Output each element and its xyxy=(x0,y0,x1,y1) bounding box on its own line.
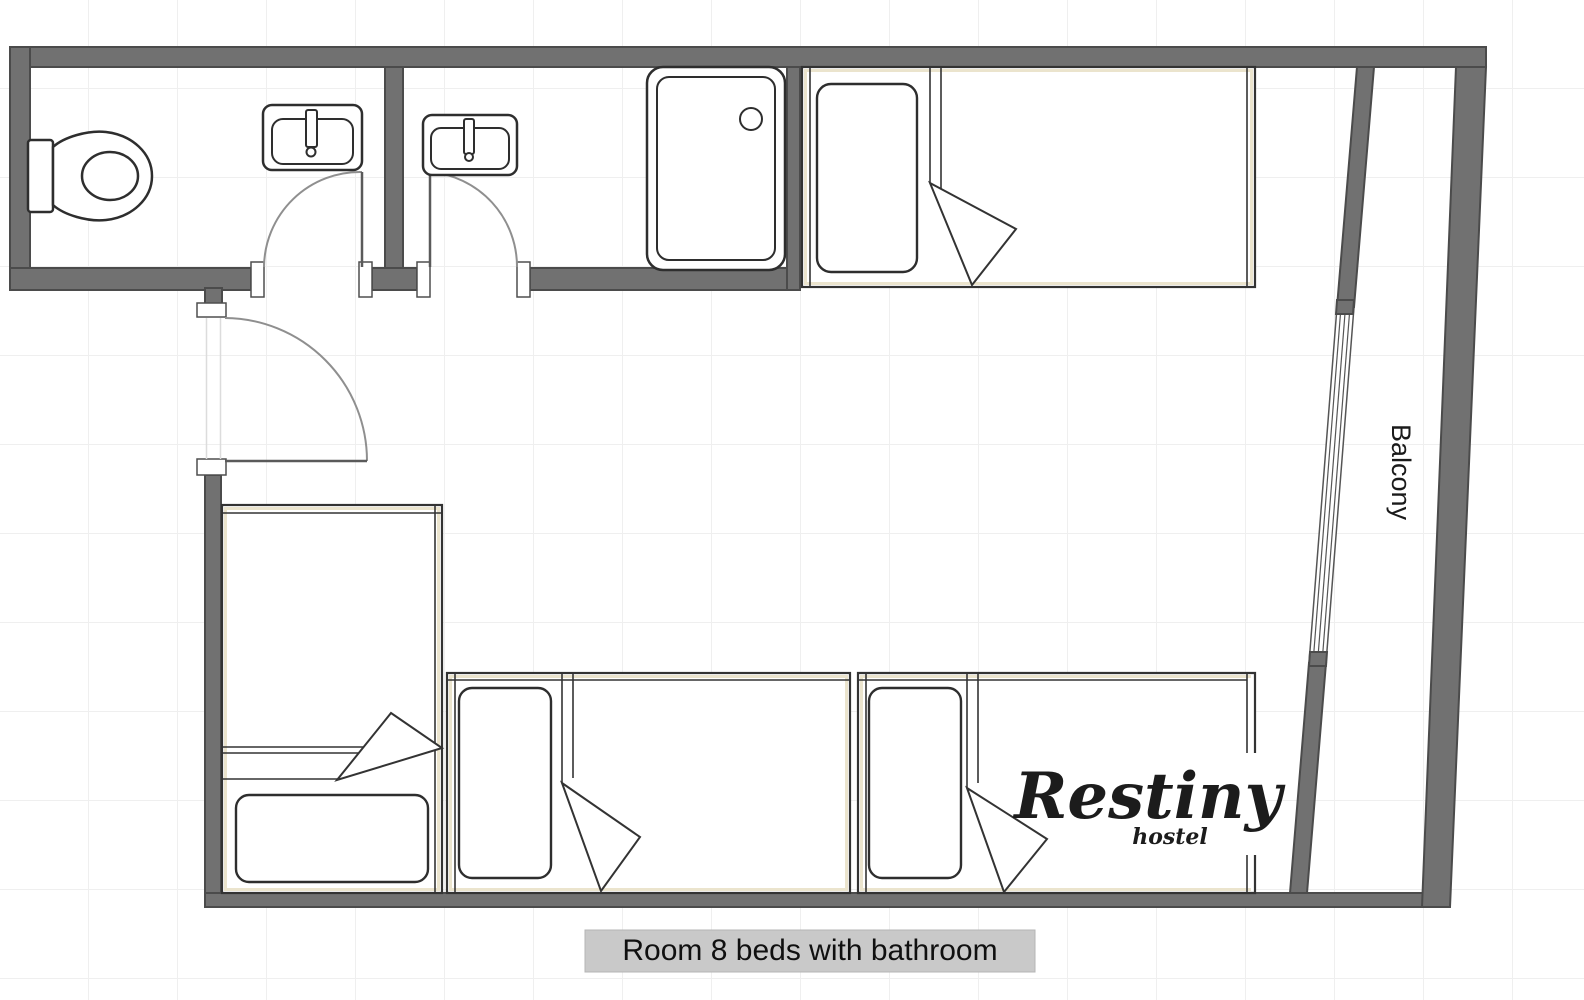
bed-bottom-middle-icon xyxy=(447,673,850,893)
jamb-bath-right-b xyxy=(517,262,530,297)
bed-left-pillow xyxy=(236,795,428,882)
toilet-icon xyxy=(28,132,152,221)
jamb-entrance-top xyxy=(197,303,226,317)
wall-bathroom-bottom-2 xyxy=(372,268,417,290)
shower-tray-inner xyxy=(657,77,775,260)
bed-mid-pillow xyxy=(459,688,551,878)
sink-right-icon xyxy=(423,115,517,175)
sink-right-faucet xyxy=(464,119,474,154)
wall-left-lower xyxy=(205,475,221,893)
toilet-tank xyxy=(28,140,53,212)
toilet-bowl-inner xyxy=(82,152,138,200)
sink-left-faucet xyxy=(306,110,317,147)
shower-drain xyxy=(740,108,762,130)
logo-hostel: hostel xyxy=(1132,824,1208,850)
sink-left-drain xyxy=(307,148,316,157)
bed-right-pillow xyxy=(869,688,961,878)
window-cap-top xyxy=(1336,300,1354,314)
floor-plan-page: Balcony Restiny hostel Room 8 beds with … xyxy=(0,0,1584,1000)
caption: Room 8 beds with bathroom xyxy=(585,930,1035,972)
wall-bathroom-bottom-3 xyxy=(530,268,800,290)
floorplan-svg: Balcony Restiny hostel Room 8 beds with … xyxy=(0,0,1584,1000)
wall-shower-right xyxy=(787,67,800,290)
wall-top xyxy=(10,47,1486,67)
jamb-bath-left-b xyxy=(359,262,372,297)
jamb-bath-right-a xyxy=(417,262,430,297)
wall-between-bathrooms xyxy=(385,67,403,268)
window-cap-bottom xyxy=(1309,652,1327,666)
jamb-entrance-bottom xyxy=(197,459,226,475)
logo-restiny: Restiny xyxy=(1012,759,1285,834)
caption-label: Room 8 beds with bathroom xyxy=(622,934,997,967)
wall-bathroom-bottom-1 xyxy=(10,268,251,290)
sink-right-drain xyxy=(465,153,473,161)
shower-icon xyxy=(647,67,785,270)
bed-left-icon xyxy=(222,505,443,893)
jamb-bath-left-a xyxy=(251,262,264,297)
sink-left-icon xyxy=(263,105,362,170)
balcony-label: Balcony xyxy=(1386,424,1416,521)
bed-top-icon xyxy=(802,67,1255,287)
bed-top-pillow xyxy=(817,84,917,272)
wall-bottom xyxy=(205,893,1436,907)
